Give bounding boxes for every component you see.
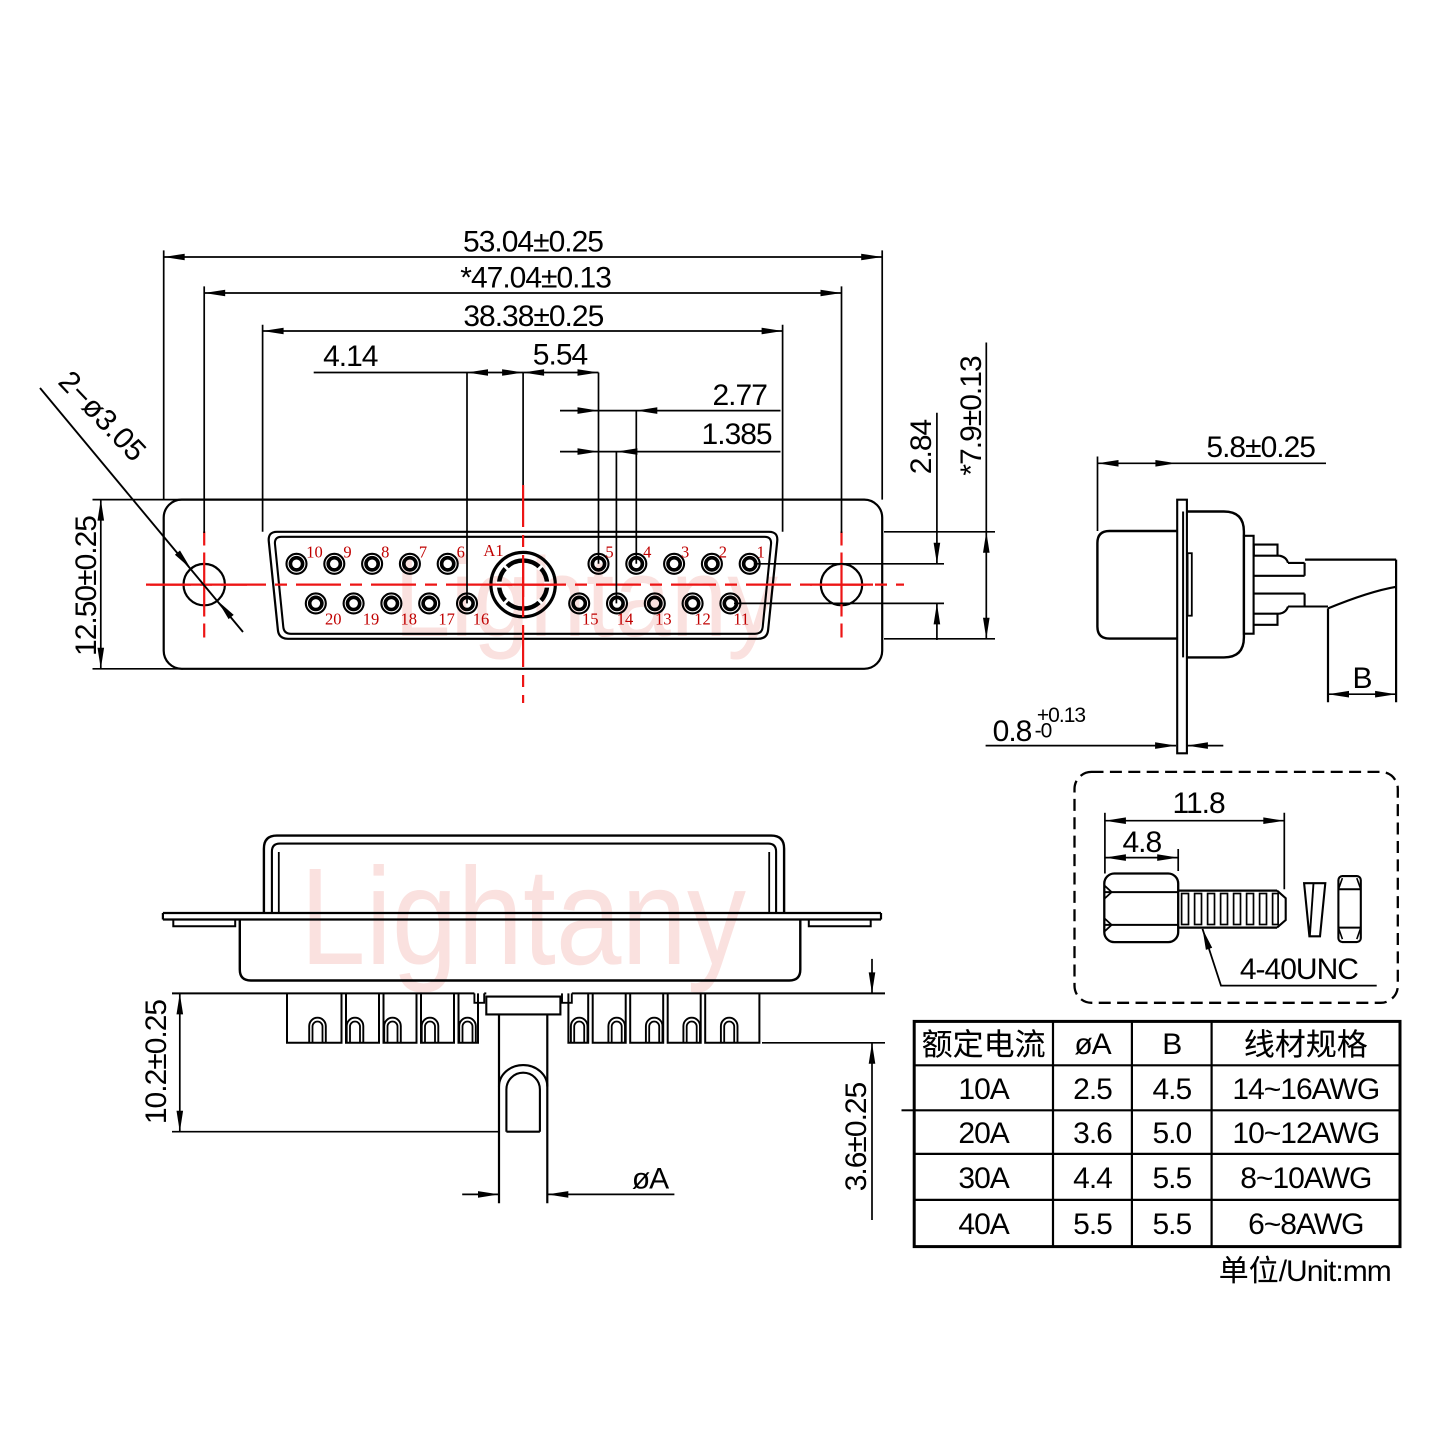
svg-text:11.8: 11.8	[1173, 787, 1225, 820]
svg-text:B: B	[1352, 662, 1371, 695]
svg-text:1: 1	[757, 543, 765, 562]
svg-text:30A: 30A	[958, 1162, 1009, 1195]
svg-text:40A: 40A	[958, 1208, 1009, 1241]
svg-text:5.54: 5.54	[533, 339, 588, 372]
svg-text:6~8AWG: 6~8AWG	[1248, 1208, 1363, 1241]
svg-text:1.385: 1.385	[702, 418, 772, 451]
svg-text:5.8±0.25: 5.8±0.25	[1206, 431, 1315, 464]
svg-text:2: 2	[719, 543, 727, 562]
svg-text:19: 19	[363, 610, 380, 629]
svg-text:14: 14	[617, 610, 634, 629]
svg-text:5.5: 5.5	[1152, 1162, 1191, 1195]
svg-text:4-40UNC: 4-40UNC	[1240, 953, 1358, 986]
svg-text:*47.04±0.13: *47.04±0.13	[460, 262, 611, 295]
svg-text:12.50±0.25: 12.50±0.25	[70, 516, 103, 656]
svg-text:16: 16	[473, 610, 490, 629]
svg-text:20A: 20A	[958, 1117, 1009, 1150]
svg-text:2.5: 2.5	[1073, 1073, 1112, 1106]
svg-text:7: 7	[419, 543, 427, 562]
svg-text:3.6: 3.6	[1073, 1117, 1112, 1150]
svg-text:4.8: 4.8	[1122, 826, 1161, 859]
svg-text:Lightany: Lightany	[300, 840, 746, 994]
svg-text:5.5: 5.5	[1152, 1208, 1191, 1241]
svg-text:3: 3	[681, 543, 689, 562]
svg-text:17: 17	[438, 610, 455, 629]
svg-text:14~16AWG: 14~16AWG	[1232, 1073, 1379, 1106]
svg-text:5: 5	[605, 543, 613, 562]
svg-text:øA: øA	[1074, 1028, 1111, 1061]
svg-text:B: B	[1162, 1028, 1181, 1061]
svg-text:4.14: 4.14	[323, 340, 378, 373]
svg-text:5.0: 5.0	[1152, 1117, 1191, 1150]
svg-text:9: 9	[343, 543, 351, 562]
svg-text:4.4: 4.4	[1073, 1162, 1112, 1195]
svg-text:10.2±0.25: 10.2±0.25	[140, 1000, 173, 1125]
svg-text:11: 11	[733, 610, 749, 629]
svg-text:4: 4	[643, 543, 651, 562]
svg-text:18: 18	[401, 610, 418, 629]
svg-text:øA: øA	[632, 1163, 669, 1196]
svg-text:/Unit:mm: /Unit:mm	[1279, 1255, 1391, 1288]
svg-text:8: 8	[381, 543, 389, 562]
svg-text:13: 13	[655, 610, 672, 629]
svg-text:*7.9±0.13: *7.9±0.13	[955, 356, 988, 476]
svg-text:A1: A1	[483, 541, 503, 560]
svg-text:15: 15	[582, 610, 599, 629]
svg-text:10A: 10A	[958, 1073, 1009, 1106]
svg-text:3.6±0.25: 3.6±0.25	[840, 1082, 873, 1191]
svg-text:4.5: 4.5	[1152, 1073, 1191, 1106]
svg-text:10: 10	[306, 543, 323, 562]
svg-text:53.04±0.25: 53.04±0.25	[463, 226, 603, 259]
svg-text:20: 20	[325, 610, 342, 629]
svg-text:10~12AWG: 10~12AWG	[1232, 1117, 1379, 1150]
svg-text:5.5: 5.5	[1073, 1208, 1112, 1241]
svg-text:12: 12	[694, 610, 711, 629]
svg-text:-0: -0	[1035, 720, 1052, 743]
svg-text:6: 6	[457, 543, 465, 562]
svg-text:8~10AWG: 8~10AWG	[1240, 1162, 1371, 1195]
svg-text:2.77: 2.77	[713, 379, 768, 412]
svg-text:2.84: 2.84	[905, 419, 938, 474]
svg-text:0.8: 0.8	[993, 715, 1032, 748]
svg-text:38.38±0.25: 38.38±0.25	[463, 300, 603, 333]
